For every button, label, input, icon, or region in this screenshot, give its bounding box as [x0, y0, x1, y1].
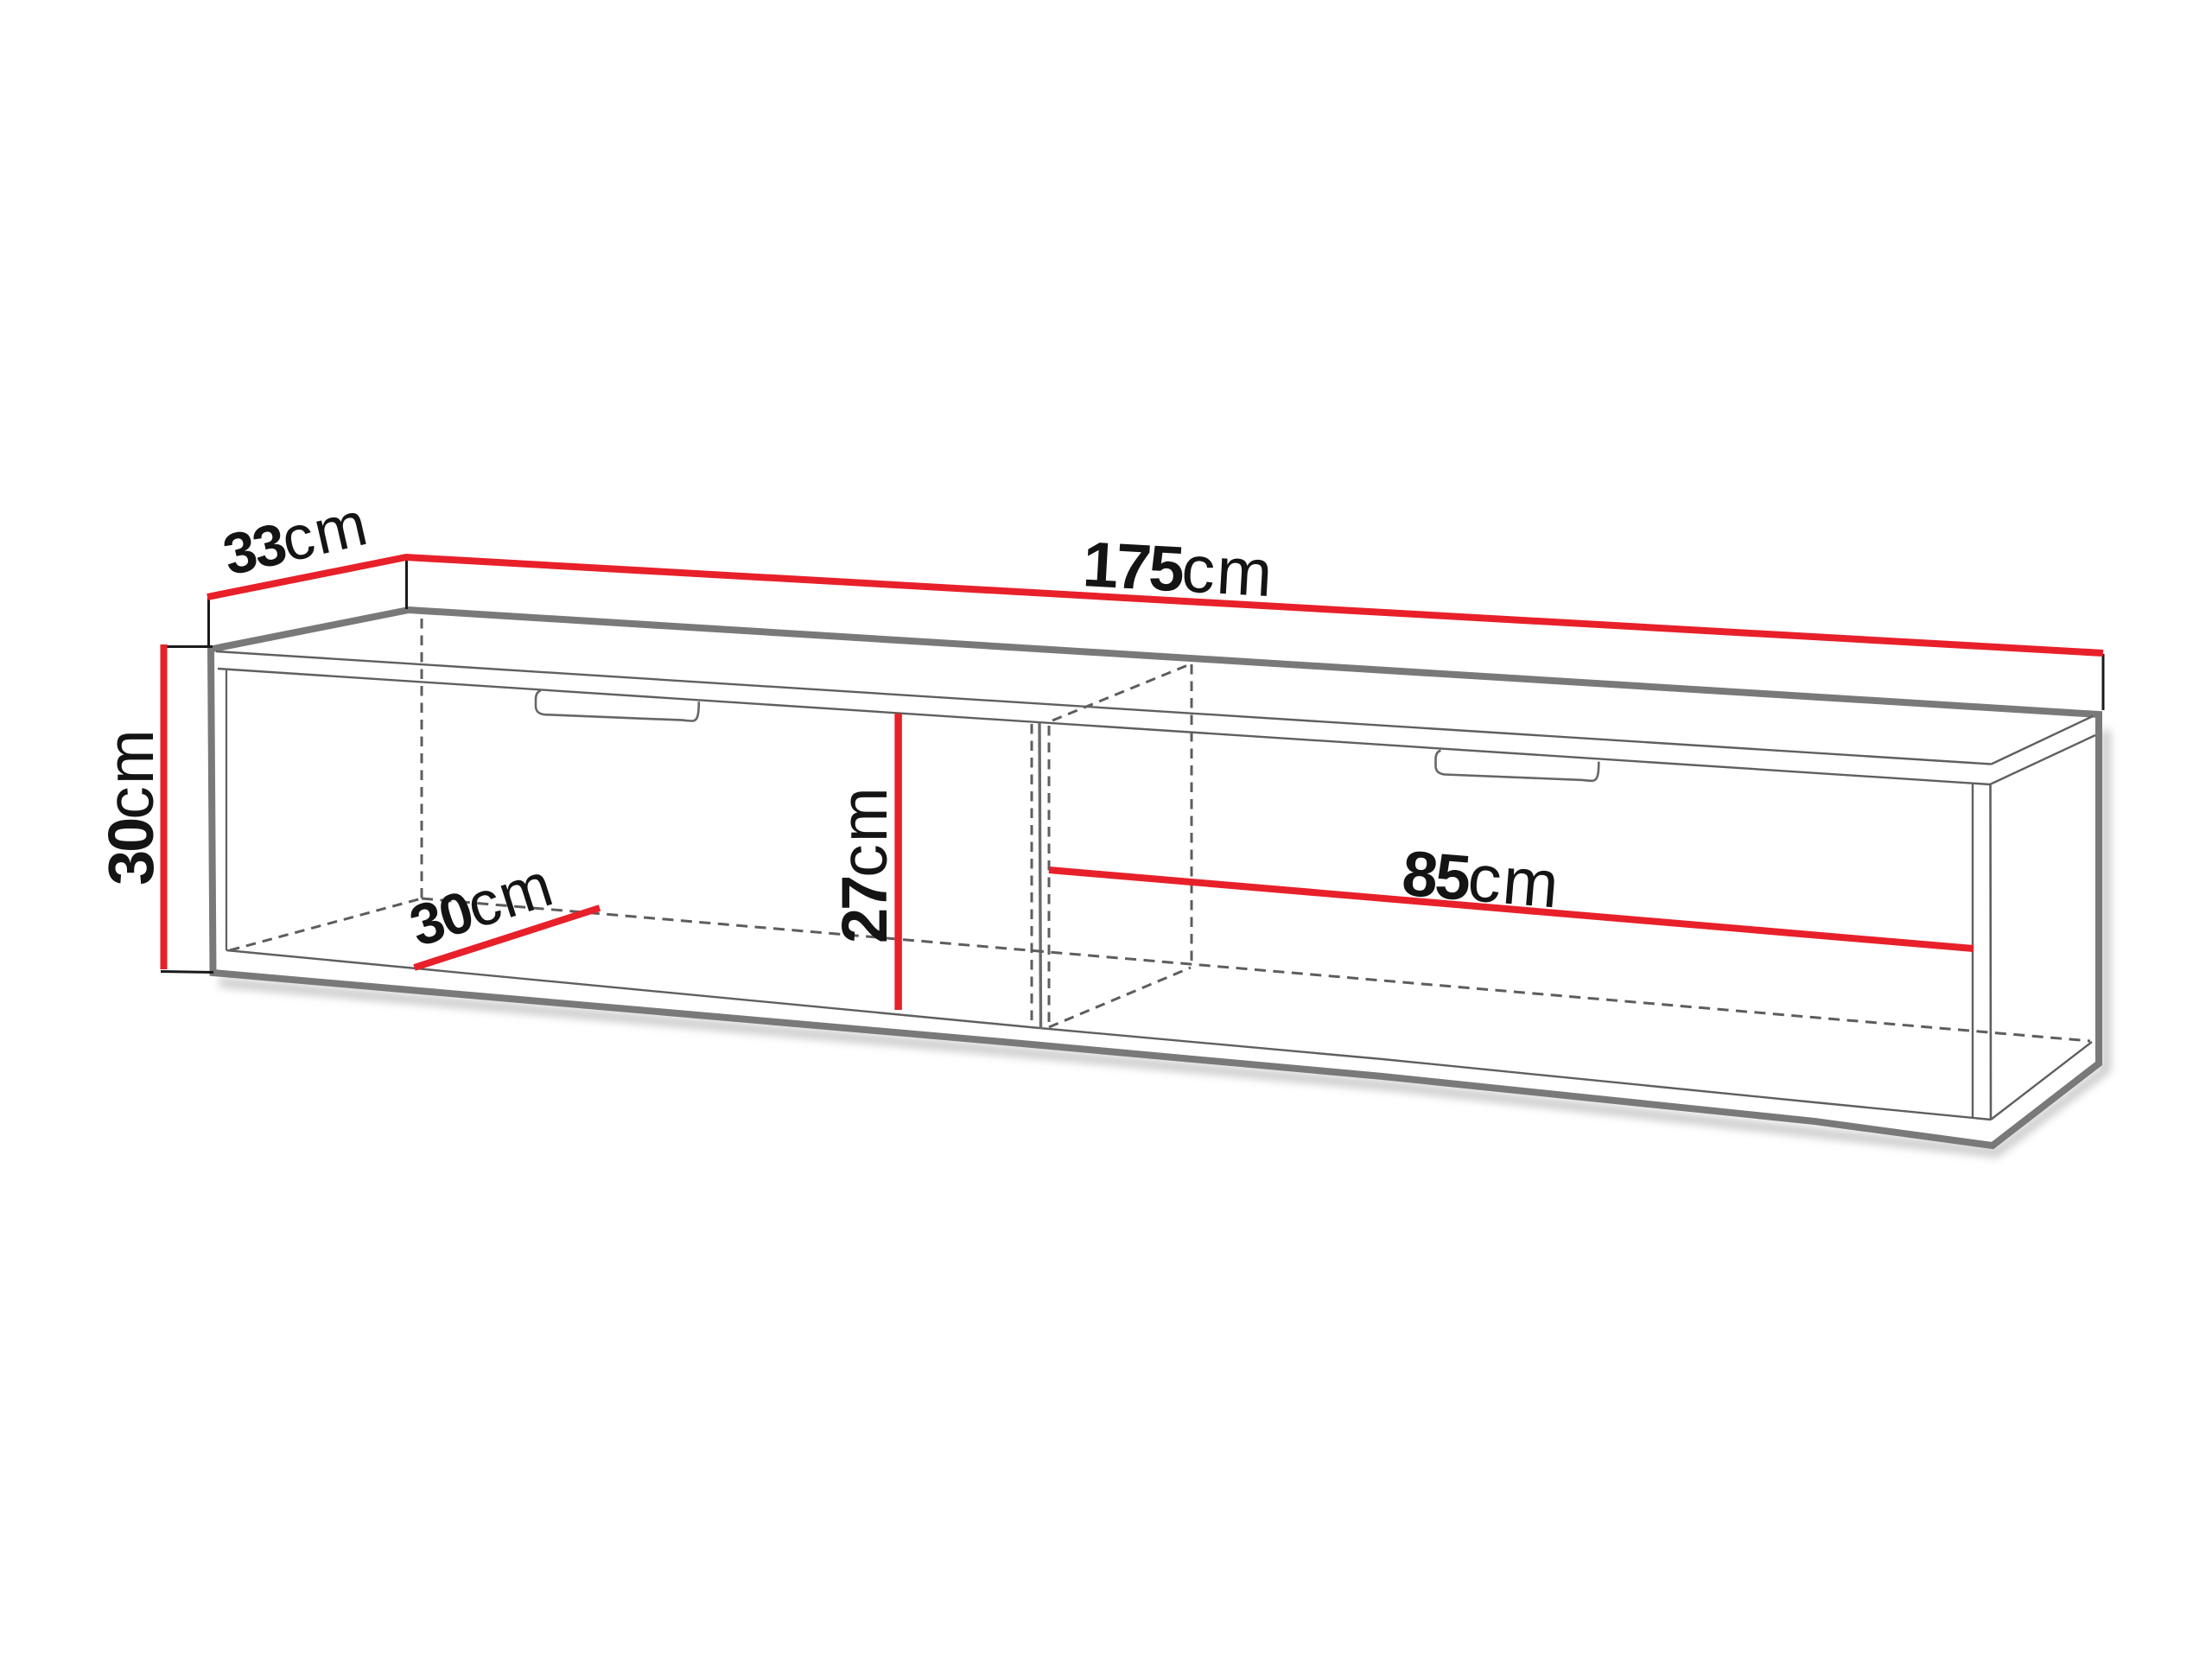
- svg-text:175cm: 175cm: [1081, 526, 1276, 611]
- svg-text:85cm: 85cm: [1400, 835, 1564, 923]
- svg-text:27cm: 27cm: [827, 785, 901, 943]
- svg-text:30cm: 30cm: [93, 727, 168, 885]
